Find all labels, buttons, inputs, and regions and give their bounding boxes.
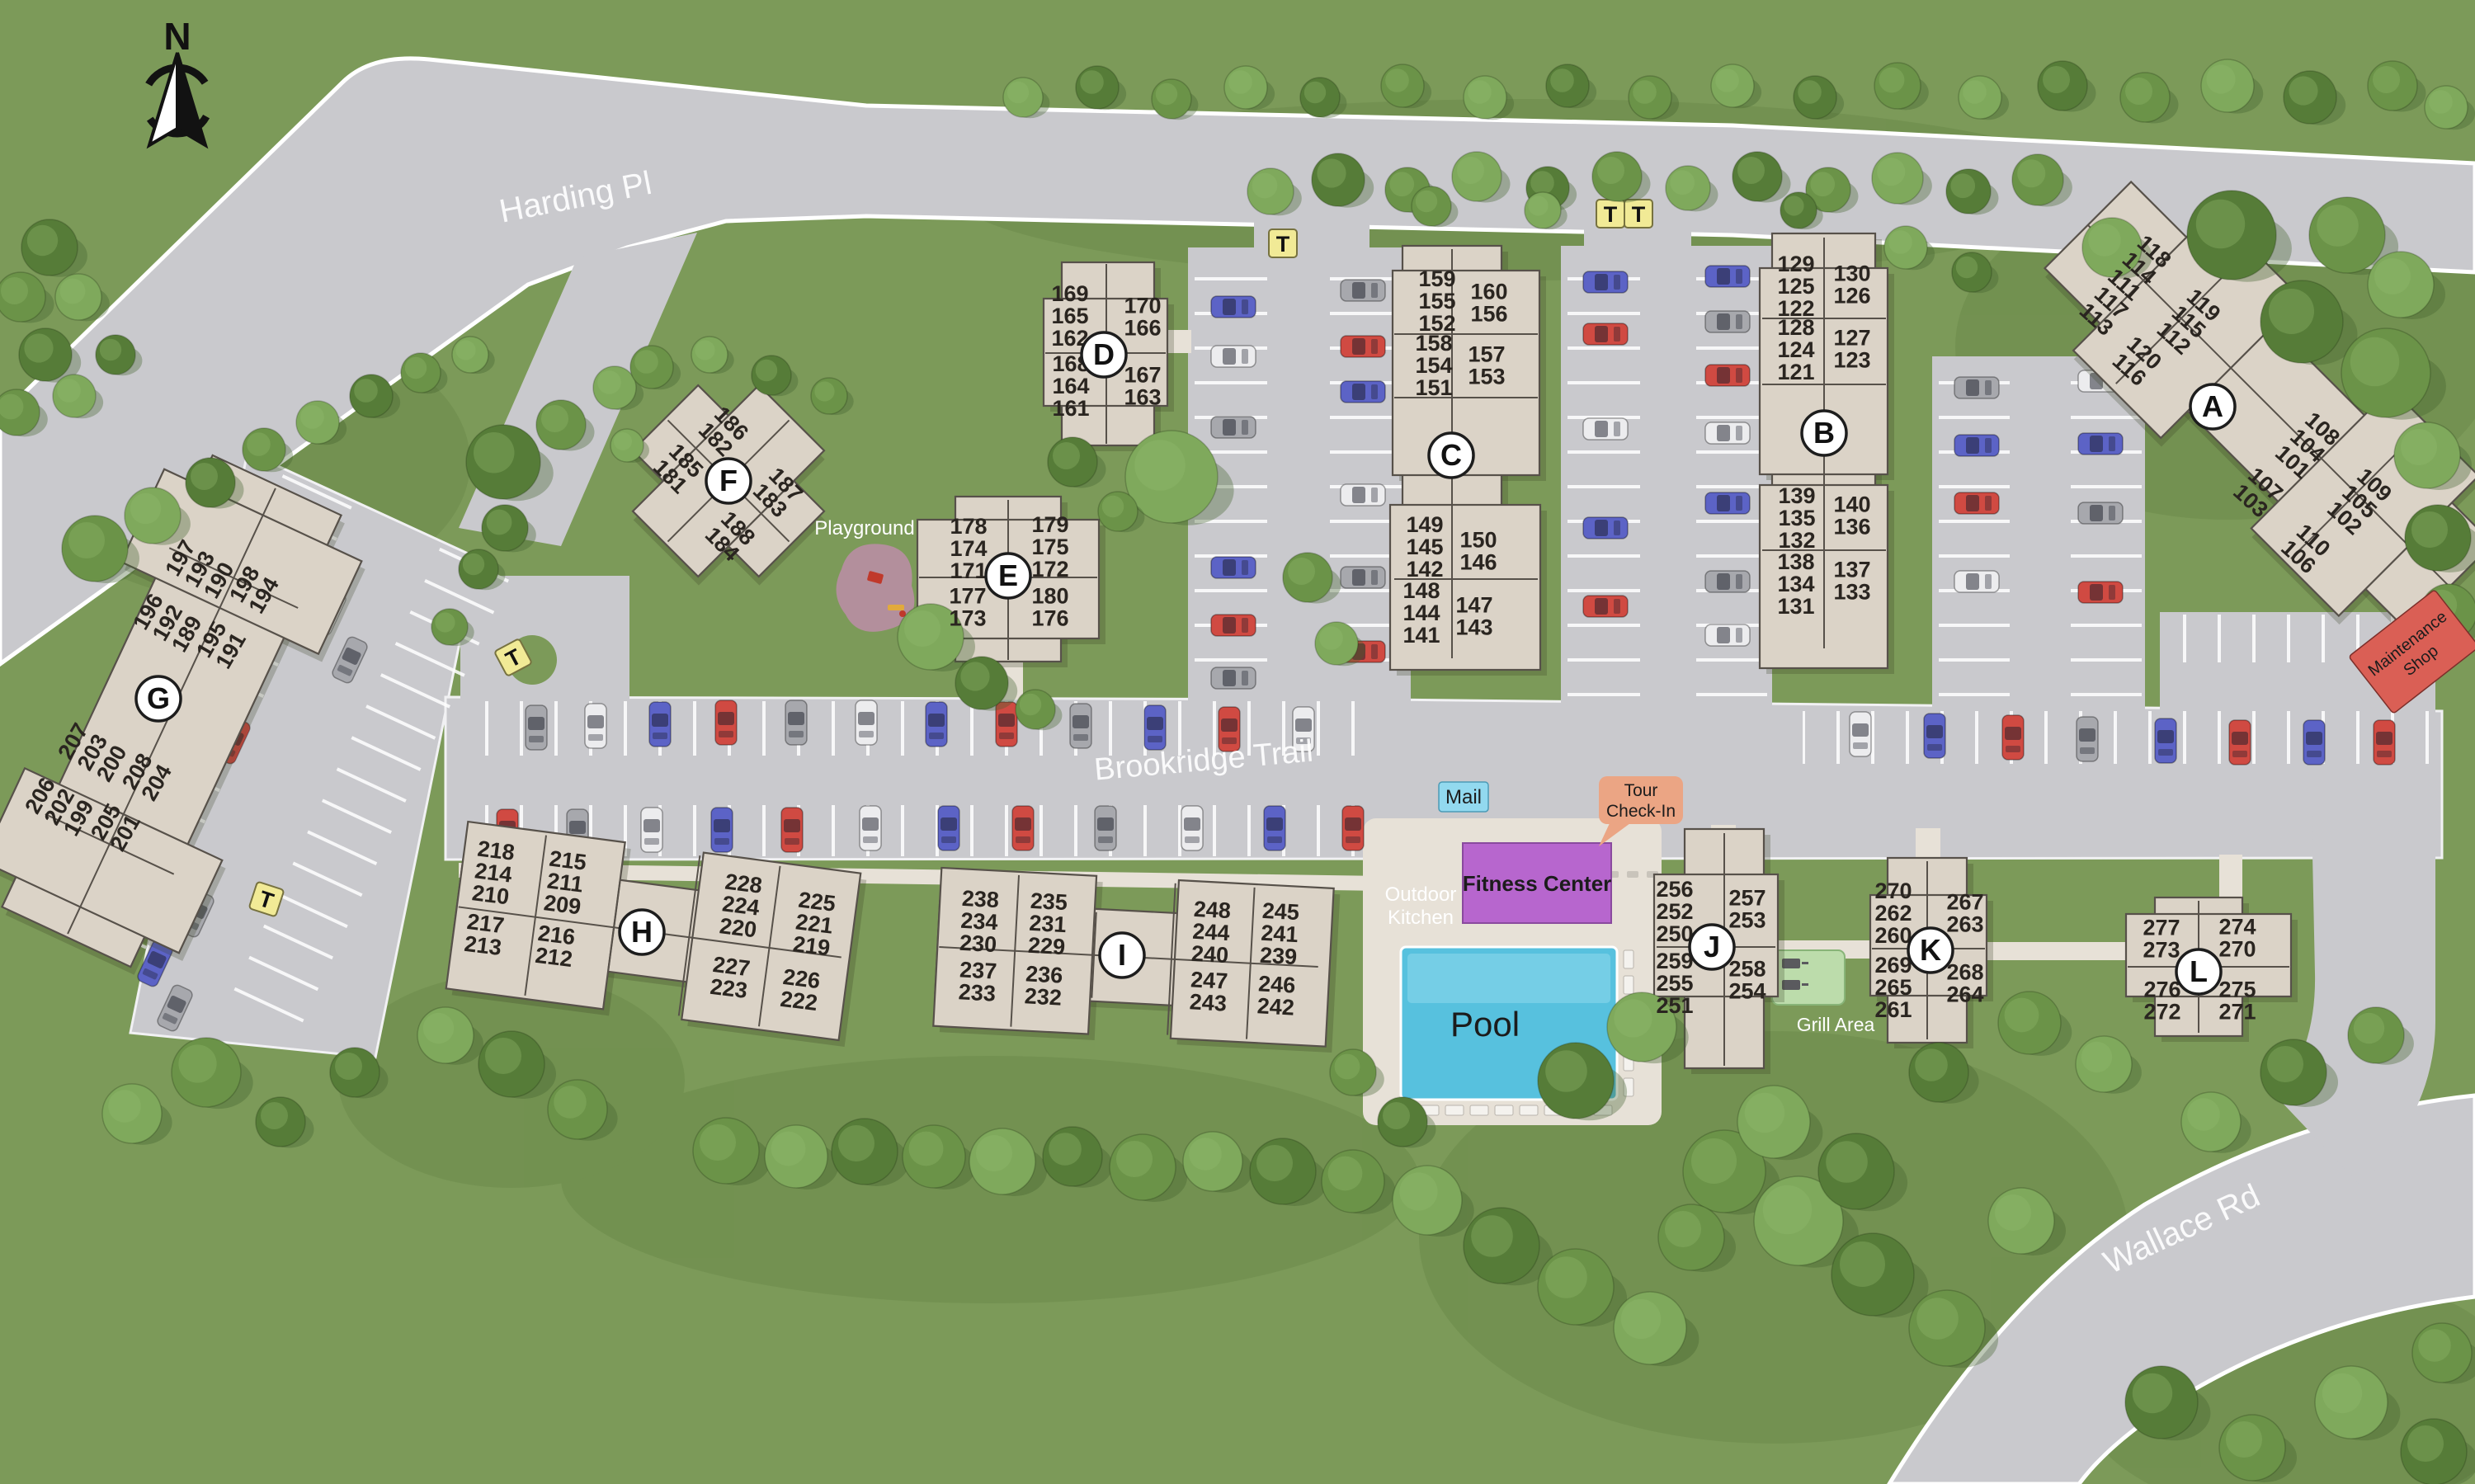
car [526,705,547,750]
car [1211,667,1256,689]
car [1211,557,1256,578]
transformer-marker: T [1596,200,1624,228]
svg-text:H: H [631,915,653,949]
building-letter-C: C [1429,433,1473,478]
car [1705,311,1750,332]
unit-label: 150146 [1459,528,1497,575]
car [2229,720,2251,765]
car [1705,624,1750,646]
unit-label: 277273 [2143,916,2180,963]
unit-label: 258254 [1728,957,1765,1004]
unit-label: 167163 [1124,363,1161,410]
unit-label: 248244240 [1190,897,1231,968]
svg-text:K: K [1920,933,1941,967]
unit-label: 226222 [779,964,822,1015]
car [649,702,671,747]
unit-label: 270262260 [1874,879,1912,948]
car [1144,705,1166,750]
unit-label: 235231229 [1027,888,1068,959]
car [2374,720,2395,765]
car [1211,346,1256,367]
unit-label: 158154151 [1415,331,1452,400]
fitness-center-label: Fitness Center [1463,871,1612,896]
unit-label: 138134131 [1777,549,1814,619]
car [1583,596,1628,617]
svg-text:G: G [147,681,170,715]
car [1583,517,1628,539]
unit-label: 177173 [949,584,986,631]
car [1341,484,1385,506]
compass-north-label: N [163,15,191,58]
car [1342,806,1364,850]
mail-label: Mail [1445,786,1482,808]
unit-label: 259255251 [1656,949,1693,1018]
building-letter-D: D [1082,332,1126,377]
car [2155,718,2176,763]
car [1954,492,1999,514]
unit-label: 216212 [534,921,577,972]
unit-label: 257253 [1728,886,1765,933]
unit-label: 217213 [463,909,506,960]
site-map: Harding Pl Brookridge Trail Wallace Rd T… [0,0,2475,1484]
building-letter-G: G [136,676,181,721]
pool-label: Pool [1450,1005,1520,1044]
svg-text:F: F [719,464,738,497]
car [1705,571,1750,592]
unit-label: 237233 [958,957,997,1006]
unit-label: 157153 [1468,342,1505,389]
car [711,808,733,852]
unit-label: 160156 [1470,280,1507,327]
svg-text:I: I [1118,938,1126,972]
unit-label: 148144141 [1402,578,1440,648]
car [1341,567,1385,588]
car [1583,323,1628,345]
unit-label: 130126 [1833,261,1870,309]
car [1954,435,1999,456]
unit-label: 238234230 [959,886,999,957]
car [1954,377,1999,398]
unit-label: 246242 [1256,971,1296,1020]
grill-area-label: Grill Area [1797,1014,1875,1035]
playground-label: Playground [814,517,914,539]
outdoor-kitchen-label-line2: Kitchen [1388,907,1454,929]
car [2078,433,2123,455]
car [715,700,737,745]
car [1070,704,1091,748]
unit-label: 267263 [1946,890,1983,937]
unit-label: 149145142 [1406,512,1443,582]
car [1341,381,1385,403]
car [1954,571,1999,592]
car [1012,806,1034,850]
building-letter-B: B [1802,411,1846,455]
tour-label-line2: Check-In [1606,802,1676,821]
svg-text:A: A [2202,389,2223,423]
car [785,700,807,745]
car [1705,422,1750,444]
mail-badge: Mail [1439,782,1488,812]
unit-label: 140136 [1833,492,1870,539]
car [1211,417,1256,438]
car [1264,806,1285,850]
svg-text:T: T [1276,232,1290,257]
car [585,704,606,748]
tour-label-line1: Tour [1624,781,1658,800]
transformer-marker: T [1624,200,1652,228]
unit-label: 169165162 [1051,281,1088,351]
svg-text:C: C [1440,438,1462,472]
unit-label: 269265261 [1874,953,1912,1022]
car [2077,717,2098,761]
car [938,806,959,850]
svg-text:J: J [1704,930,1720,963]
building-letter-F: F [706,459,751,503]
unit-label: 170166 [1124,294,1161,341]
unit-label: 268264 [1946,960,1983,1007]
pool-water-highlight [1407,954,1610,1003]
car [781,808,803,852]
unit-label: 256252250 [1656,877,1693,946]
outdoor-kitchen-label-line1: Outdoor [1385,883,1457,906]
unit-label: 276272 [2143,978,2180,1025]
unit-label: 179175172 [1031,512,1068,582]
unit-label: 137133 [1833,558,1870,605]
unit-label: 227223 [709,952,752,1003]
car [1181,806,1203,850]
transformer-marker: T [1269,229,1297,257]
car [2002,715,2024,760]
building-letter-E: E [986,554,1030,598]
car [1705,492,1750,514]
car [856,700,877,745]
svg-text:B: B [1813,416,1835,450]
car [641,808,662,852]
unit-label: 127123 [1833,326,1870,373]
building-letter-H: H [620,910,664,954]
unit-label: 247243 [1189,967,1228,1015]
car [1341,336,1385,357]
unit-label: 274270 [2218,915,2256,962]
unit-label: 275271 [2218,978,2256,1025]
car [926,702,947,747]
car [1211,296,1256,318]
svg-text:L: L [2190,954,2208,988]
unit-label: 236232 [1024,961,1063,1010]
car [1583,271,1628,293]
car [2078,502,2123,524]
building-letter-L: L [2176,949,2221,994]
car [2078,582,2123,603]
unit-label: 159155152 [1418,266,1455,336]
building-letter-J: J [1690,925,1734,969]
unit-label: 180176 [1031,584,1068,631]
svg-text:T: T [1632,202,1646,227]
unit-label: 129125122 [1777,252,1814,321]
svg-text:T: T [1604,202,1618,227]
car [1850,712,1871,756]
building-letter-A: A [2190,384,2235,429]
svg-text:E: E [998,558,1018,592]
car [1341,280,1385,301]
building-letter-K: K [1908,928,1953,973]
svg-text:D: D [1093,337,1115,371]
car [1705,365,1750,386]
car [2303,720,2325,765]
unit-label: 139135132 [1778,483,1815,553]
unit-label: 147143 [1455,593,1492,640]
unit-label: 128124121 [1777,315,1814,384]
unit-label: 178174171 [950,514,987,583]
unit-label: 245241239 [1259,898,1299,969]
building-letter-I: I [1100,933,1144,978]
car [1211,615,1256,636]
car [1705,266,1750,287]
car [1583,418,1628,440]
car [1924,714,1945,758]
car [1095,806,1116,850]
car [860,806,881,850]
